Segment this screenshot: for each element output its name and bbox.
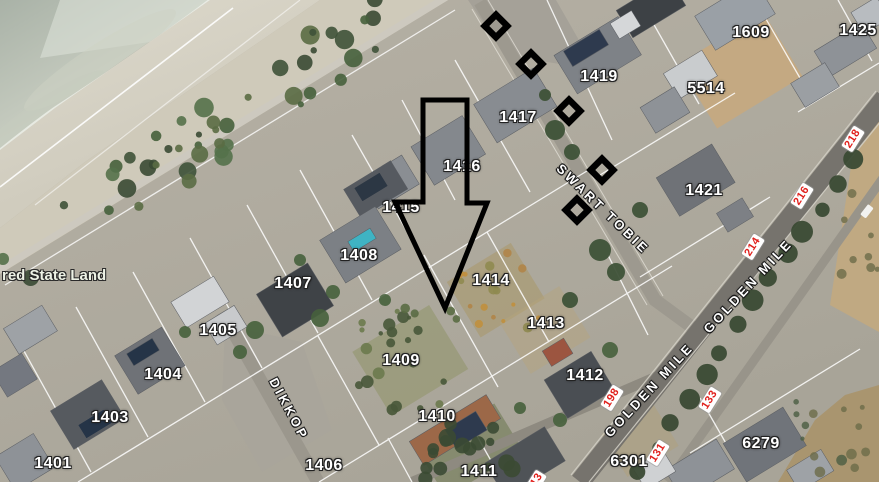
parcel-label-1409: 1409	[382, 352, 420, 370]
map-label-layer: 1609142514195514141714161421141514081414…	[0, 0, 879, 482]
street-name-label: SWART TOBIE	[554, 161, 653, 257]
parcel-label-1407: 1407	[274, 275, 312, 293]
parcel-label-1405: 1405	[199, 322, 237, 340]
parcel-label-1401: 1401	[34, 455, 72, 473]
street-name-label: DIKKOP	[266, 375, 311, 443]
route-number-marker: 13	[527, 469, 547, 482]
parcel-label-6301: 6301	[610, 453, 648, 471]
route-number-marker: 198	[600, 384, 624, 411]
parcel-label-1421: 1421	[685, 182, 723, 200]
parcel-label-1415: 1415	[382, 199, 420, 217]
parcel-label-1410: 1410	[418, 408, 456, 426]
parcel-label-1416: 1416	[443, 158, 481, 176]
parcel-label-1406: 1406	[305, 457, 343, 475]
parcel-label-1413: 1413	[527, 315, 565, 333]
parcel-label-1403: 1403	[91, 409, 129, 427]
route-number-marker: 214	[741, 233, 765, 260]
parcel-label-6279: 6279	[742, 435, 780, 453]
state-land-label: red State Land	[2, 267, 106, 284]
parcel-label-5514: 5514	[687, 80, 725, 98]
parcel-label-1417: 1417	[499, 109, 537, 127]
parcel-label-1425: 1425	[839, 22, 877, 40]
parcel-label-1419: 1419	[580, 68, 618, 86]
route-number-marker: 133	[698, 386, 722, 413]
parcel-label-1412: 1412	[566, 367, 604, 385]
parcel-label-1414: 1414	[472, 272, 510, 290]
parcel-label-1609: 1609	[732, 24, 770, 42]
parcel-label-1408: 1408	[340, 247, 378, 265]
route-number-marker: 216	[790, 182, 814, 209]
parcel-label-1411: 1411	[461, 463, 498, 481]
aerial-map-canvas[interactable]: 1609142514195514141714161421141514081414…	[0, 0, 879, 482]
route-number-marker: 218	[841, 125, 865, 152]
route-number-marker: 131	[646, 439, 670, 466]
parcel-label-1404: 1404	[144, 366, 182, 384]
